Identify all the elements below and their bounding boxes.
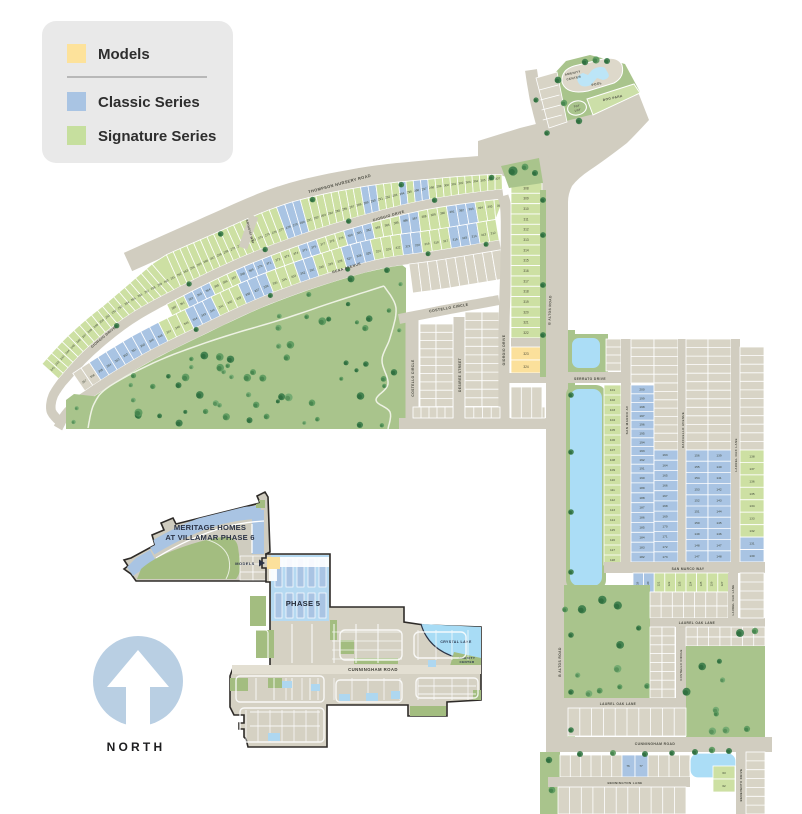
svg-text:320: 320 (415, 243, 421, 248)
svg-text:186: 186 (639, 516, 644, 520)
svg-text:395: 395 (487, 204, 493, 209)
svg-text:PHASE 5: PHASE 5 (286, 599, 321, 608)
svg-text:148: 148 (694, 543, 699, 547)
svg-text:124: 124 (688, 581, 692, 586)
svg-text:RAFFAELLO AVENUE: RAFFAELLO AVENUE (681, 412, 685, 448)
svg-text:169: 169 (662, 514, 667, 518)
svg-text:BENNINGTON LANE: BENNINGTON LANE (607, 781, 642, 785)
svg-text:108: 108 (610, 458, 615, 462)
svg-text:193: 193 (639, 449, 644, 453)
svg-text:317: 317 (443, 239, 449, 244)
svg-text:319: 319 (424, 242, 430, 247)
svg-text:77: 77 (639, 764, 643, 768)
svg-text:305: 305 (480, 178, 486, 183)
svg-text:299: 299 (436, 184, 442, 189)
svg-text:323: 323 (523, 352, 529, 356)
svg-text:185: 185 (639, 526, 644, 530)
svg-text:121: 121 (657, 581, 661, 586)
svg-text:141: 141 (716, 476, 721, 480)
svg-text:321: 321 (405, 244, 411, 249)
svg-text:CUNNINGHAM ROAD: CUNNINGHAM ROAD (348, 667, 398, 672)
svg-text:142: 142 (716, 487, 721, 491)
svg-text:166: 166 (662, 484, 667, 488)
svg-text:151: 151 (694, 510, 699, 514)
svg-text:146: 146 (716, 532, 721, 536)
svg-text:190: 190 (639, 476, 644, 480)
svg-text:324: 324 (523, 365, 529, 369)
svg-text:122: 122 (667, 581, 671, 586)
svg-text:302: 302 (458, 181, 464, 186)
svg-text:199: 199 (639, 396, 644, 400)
svg-text:COSTELLO CIRCLE: COSTELLO CIRCLE (411, 359, 415, 397)
svg-text:110: 110 (610, 478, 615, 482)
svg-text:140: 140 (716, 465, 721, 469)
svg-text:116: 116 (610, 538, 615, 542)
svg-text:NORTH: NORTH (107, 740, 166, 754)
svg-text:138: 138 (749, 454, 754, 458)
svg-text:125: 125 (699, 581, 703, 586)
svg-text:107: 107 (610, 448, 615, 452)
svg-text:315: 315 (523, 259, 529, 263)
svg-text:167: 167 (662, 494, 667, 498)
svg-text:Signature Series: Signature Series (98, 128, 216, 145)
svg-text:316: 316 (523, 269, 529, 273)
svg-text:143: 143 (716, 499, 721, 503)
svg-text:192: 192 (639, 458, 644, 462)
svg-text:112: 112 (610, 498, 615, 502)
svg-text:148: 148 (716, 555, 721, 559)
svg-text:170: 170 (662, 525, 667, 529)
svg-text:LAUREL OAK LANE: LAUREL OAK LANE (600, 702, 636, 706)
svg-text:200: 200 (639, 388, 644, 392)
svg-text:COSTELLO CIRCLE: COSTELLO CIRCLE (679, 649, 683, 680)
svg-text:104: 104 (610, 418, 615, 422)
svg-text:321: 321 (523, 321, 529, 325)
svg-text:150: 150 (694, 521, 699, 525)
svg-text:165: 165 (662, 474, 667, 478)
svg-text:GIORGIO DRIVE: GIORGIO DRIVE (502, 334, 506, 365)
svg-text:311: 311 (523, 217, 528, 221)
svg-text:313: 313 (523, 238, 529, 242)
svg-text:318: 318 (433, 240, 439, 245)
svg-text:127: 127 (720, 581, 724, 586)
svg-text:154: 154 (694, 476, 699, 480)
svg-text:323: 323 (386, 247, 392, 252)
svg-text:303: 303 (465, 180, 471, 185)
svg-text:AT VILLAMAR PHASE 6: AT VILLAMAR PHASE 6 (165, 533, 254, 542)
svg-text:195: 195 (639, 432, 644, 436)
svg-text:300: 300 (444, 183, 450, 188)
svg-text:194: 194 (639, 440, 644, 444)
svg-text:314: 314 (523, 248, 529, 252)
svg-text:163: 163 (662, 453, 667, 457)
svg-text:184: 184 (639, 535, 644, 539)
svg-text:147: 147 (694, 555, 699, 559)
svg-text:171: 171 (662, 535, 667, 539)
svg-text:105: 105 (610, 428, 615, 432)
svg-text:187: 187 (639, 506, 644, 510)
svg-text:183: 183 (639, 545, 644, 549)
svg-text:147: 147 (716, 543, 721, 547)
svg-text:172: 172 (662, 545, 667, 549)
svg-text:144: 144 (716, 510, 721, 514)
svg-text:312: 312 (523, 228, 529, 232)
svg-text:CRYSTAL LAKE: CRYSTAL LAKE (440, 640, 472, 644)
svg-text:390: 390 (440, 211, 446, 216)
svg-text:322: 322 (395, 245, 401, 250)
svg-text:102: 102 (610, 398, 615, 402)
svg-text:320: 320 (523, 310, 529, 314)
svg-text:198: 198 (639, 405, 644, 409)
svg-text:155: 155 (694, 465, 699, 469)
svg-text:309: 309 (523, 197, 529, 201)
svg-text:123: 123 (678, 581, 682, 586)
svg-text:319: 319 (523, 300, 529, 304)
svg-text:134: 134 (749, 504, 754, 508)
svg-text:135: 135 (749, 492, 754, 496)
svg-text:126: 126 (710, 581, 714, 586)
svg-text:B ALTOS ROAD: B ALTOS ROAD (558, 647, 562, 677)
svg-text:322: 322 (523, 331, 529, 335)
svg-text:156: 156 (694, 454, 699, 458)
svg-text:394: 394 (478, 205, 484, 210)
svg-text:393: 393 (468, 207, 474, 212)
svg-text:304: 304 (473, 179, 479, 184)
svg-text:182: 182 (639, 555, 644, 559)
svg-text:LAUREL OAK LANE: LAUREL OAK LANE (731, 585, 735, 616)
svg-text:139: 139 (716, 454, 721, 458)
svg-text:145: 145 (716, 521, 721, 525)
svg-text:117: 117 (610, 548, 615, 552)
svg-text:189: 189 (639, 486, 644, 490)
svg-text:LAUREL OAK LANE: LAUREL OAK LANE (734, 438, 738, 472)
svg-text:CENTER: CENTER (459, 660, 474, 664)
svg-text:391: 391 (449, 209, 455, 214)
svg-text:317: 317 (523, 279, 529, 283)
svg-text:113: 113 (610, 508, 615, 512)
svg-text:307: 307 (495, 176, 501, 181)
svg-text:101: 101 (610, 388, 615, 392)
svg-text:CUNNINGHAM ROAD: CUNNINGHAM ROAD (635, 742, 676, 746)
svg-text:SERRATO DRIVE: SERRATO DRIVE (574, 377, 606, 381)
svg-text:Models: Models (98, 46, 150, 63)
svg-text:111: 111 (610, 488, 615, 492)
svg-text:115: 115 (610, 528, 615, 532)
svg-text:392: 392 (459, 208, 465, 213)
svg-text:130: 130 (749, 554, 754, 558)
svg-text:136: 136 (749, 479, 754, 483)
svg-text:BENEVENTO DRIVE: BENEVENTO DRIVE (739, 769, 743, 802)
svg-text:114: 114 (610, 518, 615, 522)
svg-text:301: 301 (451, 182, 457, 187)
svg-text:164: 164 (662, 463, 667, 467)
svg-text:SAN MARCO AV: SAN MARCO AV (625, 405, 629, 434)
svg-text:131: 131 (749, 542, 754, 546)
svg-text:132: 132 (749, 529, 754, 533)
svg-text:MERITAGE HOMES: MERITAGE HOMES (174, 523, 246, 532)
svg-text:MODELS: MODELS (235, 561, 255, 566)
svg-text:310: 310 (523, 207, 529, 211)
svg-text:318: 318 (523, 290, 529, 294)
svg-text:DESIREE STREET: DESIREE STREET (458, 358, 462, 392)
svg-text:196: 196 (639, 423, 644, 427)
svg-text:133: 133 (749, 517, 754, 521)
svg-text:137: 137 (749, 467, 754, 471)
svg-text:152: 152 (694, 499, 699, 503)
svg-text:191: 191 (639, 467, 644, 471)
svg-text:173: 173 (662, 555, 667, 559)
svg-text:62: 62 (722, 784, 726, 788)
svg-text:SAN MARCO WAY: SAN MARCO WAY (672, 567, 705, 571)
svg-text:Classic Series: Classic Series (98, 94, 200, 111)
svg-text:103: 103 (610, 408, 615, 412)
svg-text:197: 197 (639, 414, 644, 418)
svg-text:76: 76 (626, 764, 630, 768)
svg-text:149: 149 (694, 532, 699, 536)
svg-text:63: 63 (722, 771, 726, 775)
svg-text:109: 109 (610, 468, 615, 472)
svg-text:106: 106 (610, 438, 615, 442)
svg-text:LAUREL OAK LANE: LAUREL OAK LANE (679, 621, 715, 625)
svg-text:118: 118 (610, 558, 615, 562)
svg-text:308: 308 (523, 186, 529, 190)
svg-text:168: 168 (662, 504, 667, 508)
svg-text:153: 153 (694, 487, 699, 491)
svg-text:188: 188 (639, 496, 644, 500)
